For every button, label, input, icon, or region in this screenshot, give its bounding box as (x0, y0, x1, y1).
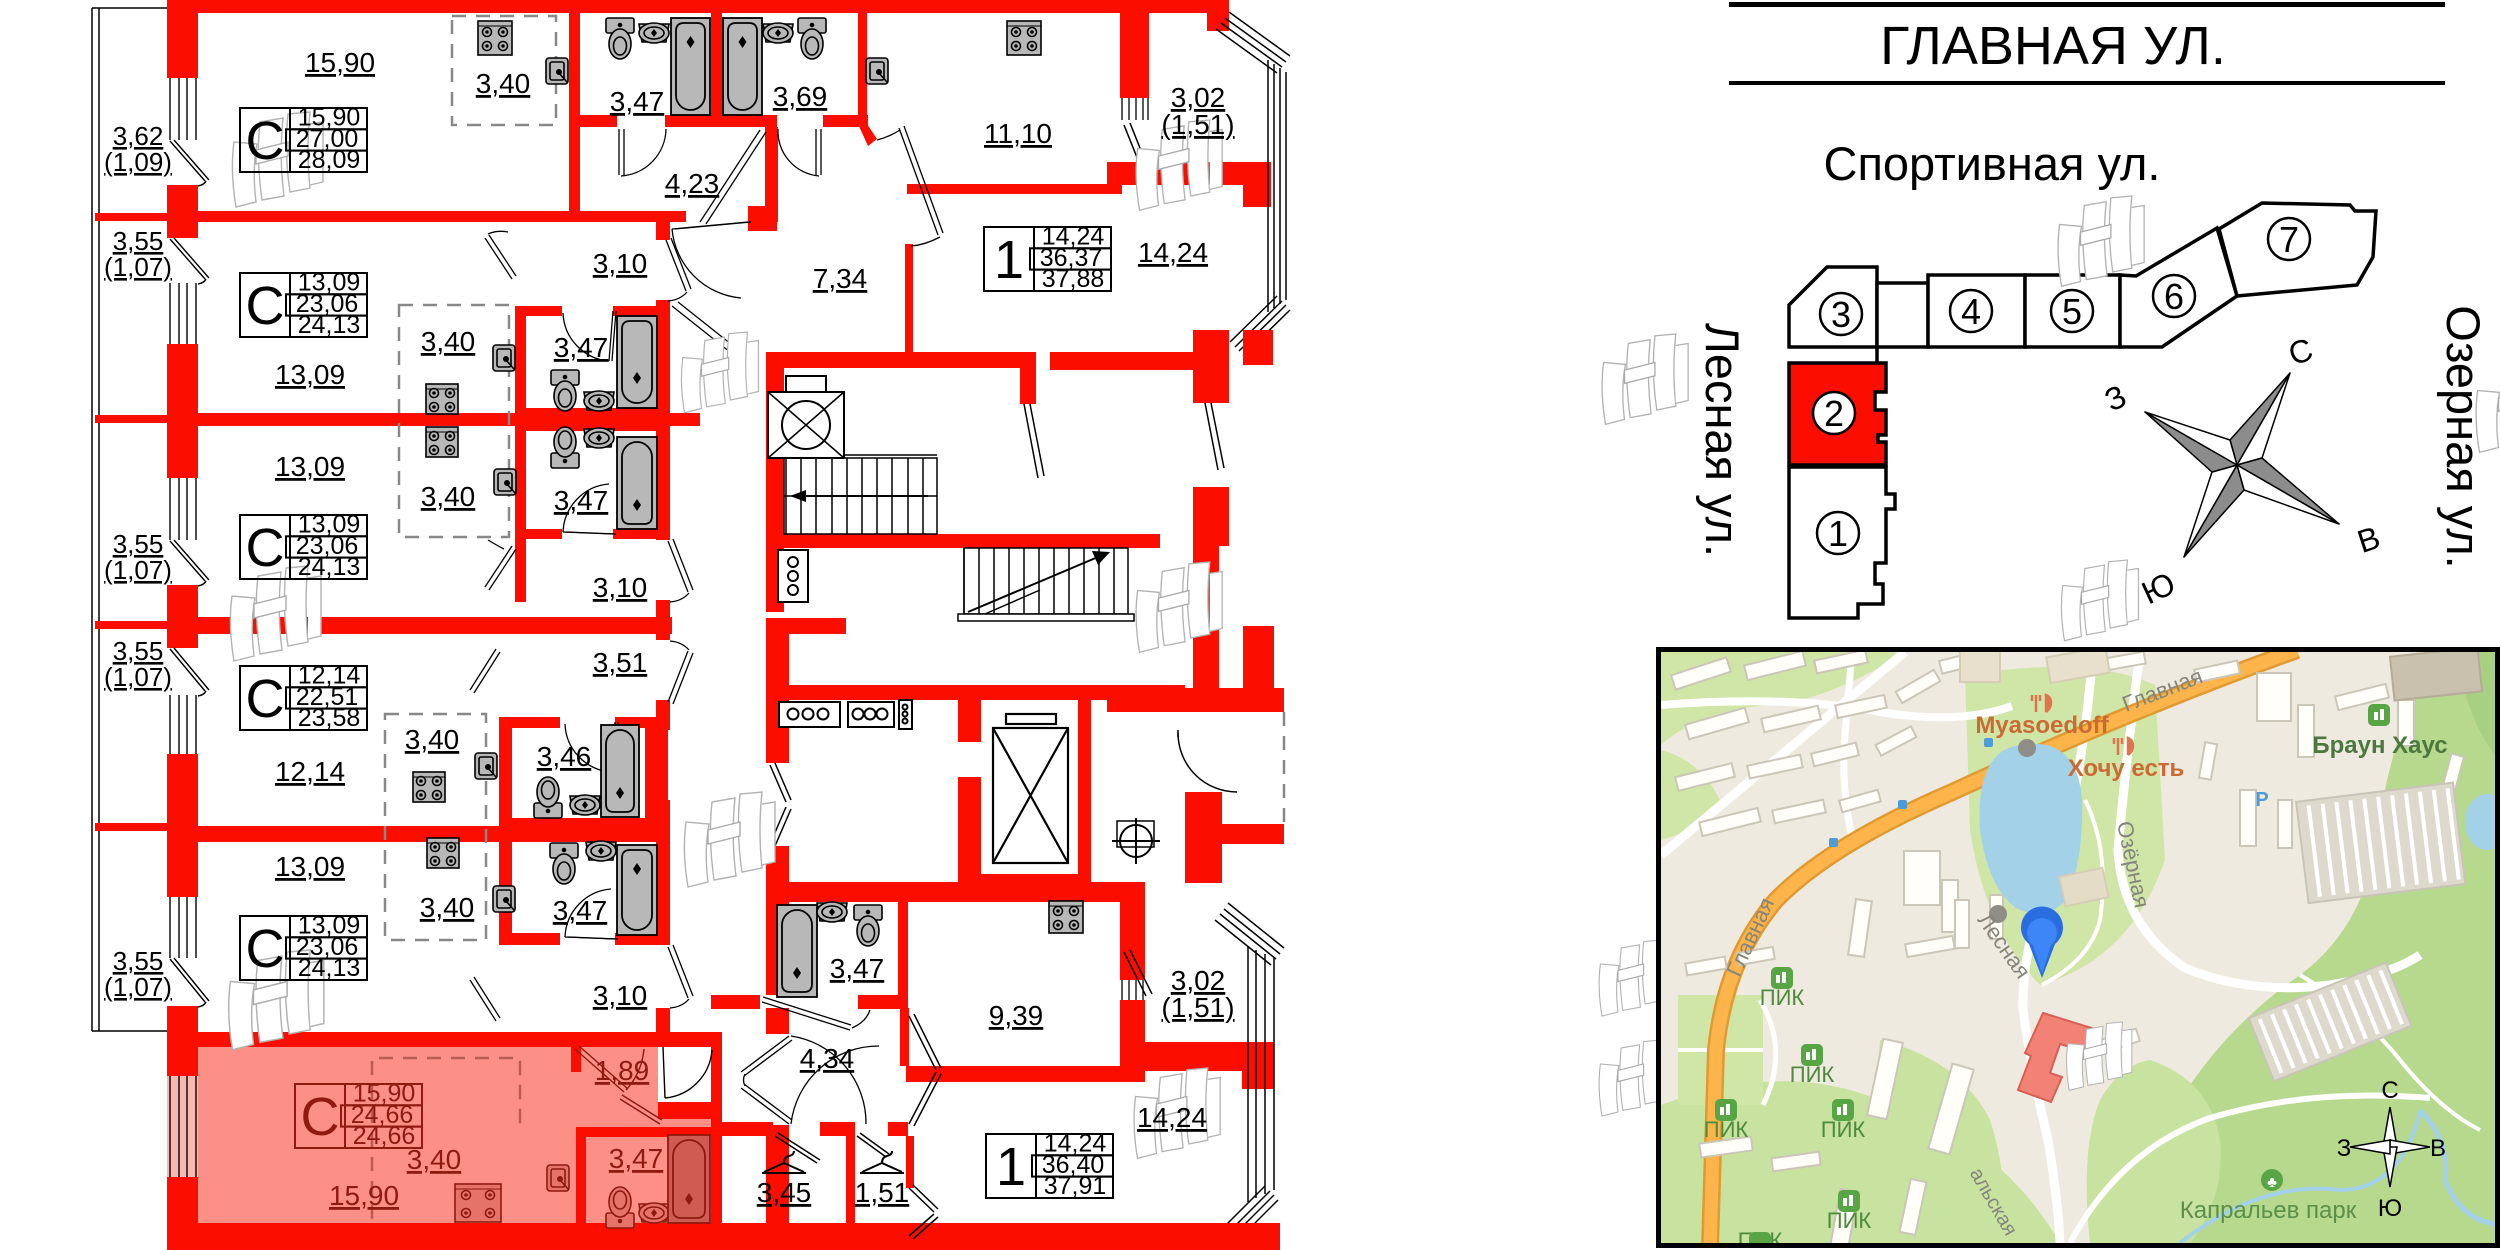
svg-text:С: С (246, 518, 285, 578)
svg-text:3,40: 3,40 (421, 481, 476, 512)
svg-text:(1,51): (1,51) (1161, 109, 1234, 140)
svg-text:Спортивная ул.: Спортивная ул. (1824, 137, 2161, 190)
svg-text:3,10: 3,10 (593, 980, 648, 1011)
svg-text:23,58: 23,58 (298, 704, 361, 732)
svg-text:13,09: 13,09 (275, 451, 345, 482)
svg-text:Myasoedoff: Myasoedoff (1975, 712, 2109, 739)
svg-text:3,10: 3,10 (593, 248, 648, 279)
svg-text:З: З (2099, 378, 2132, 419)
svg-text:(1,07): (1,07) (104, 252, 172, 282)
svg-text:ПИК: ПИК (1760, 985, 1805, 1010)
svg-text:9,39: 9,39 (989, 1000, 1044, 1031)
svg-text:ПИК: ПИК (1821, 1117, 1866, 1142)
svg-text:3,47: 3,47 (554, 332, 609, 363)
svg-text:С: С (246, 111, 285, 171)
svg-text:2: 2 (1824, 393, 1844, 434)
svg-text:(1,07): (1,07) (104, 662, 172, 692)
svg-text:14,24: 14,24 (1138, 237, 1208, 268)
svg-text:ПИК: ПИК (1827, 1208, 1872, 1233)
svg-text:P: P (2255, 789, 2268, 811)
svg-text:3,69: 3,69 (773, 81, 828, 112)
svg-text:37,88: 37,88 (1042, 265, 1105, 293)
svg-text:3,47: 3,47 (609, 1143, 664, 1174)
svg-text:13,09: 13,09 (275, 359, 345, 390)
svg-text:В: В (2353, 519, 2384, 560)
svg-text:1,89: 1,89 (595, 1055, 650, 1086)
svg-text:7,34: 7,34 (813, 263, 868, 294)
svg-text:1: 1 (996, 1137, 1026, 1197)
svg-text:3,47: 3,47 (554, 485, 609, 516)
svg-text:3,47: 3,47 (553, 895, 608, 926)
svg-text:1,51: 1,51 (855, 1177, 910, 1208)
svg-text:13,09: 13,09 (275, 851, 345, 882)
svg-text:3: 3 (1831, 294, 1851, 335)
svg-text:ПИК: ПИК (1704, 1117, 1749, 1142)
svg-text:37,91: 37,91 (1044, 1172, 1107, 1200)
svg-text:28,09: 28,09 (298, 146, 361, 174)
svg-text:3,46: 3,46 (537, 741, 592, 772)
svg-text:11,10: 11,10 (984, 118, 1052, 149)
svg-text:3,47: 3,47 (830, 953, 885, 984)
svg-text:24,13: 24,13 (298, 954, 361, 982)
svg-text:(1,07): (1,07) (104, 555, 172, 585)
svg-text:14,24: 14,24 (1137, 1102, 1207, 1133)
svg-text:12,14: 12,14 (275, 756, 345, 787)
svg-text:С: С (246, 669, 285, 729)
svg-text:6: 6 (2164, 276, 2184, 317)
svg-text:В: В (2430, 1135, 2446, 1162)
svg-text:3,40: 3,40 (405, 724, 460, 755)
svg-text:5: 5 (2062, 291, 2082, 332)
svg-text:3,45: 3,45 (757, 1177, 812, 1208)
svg-text:15,90: 15,90 (329, 1180, 399, 1211)
svg-text:ГЛАВНАЯ УЛ.: ГЛАВНАЯ УЛ. (1880, 16, 2226, 76)
svg-text:С: С (301, 1087, 340, 1147)
svg-text:Ю: Ю (2136, 565, 2181, 611)
svg-text:3,51: 3,51 (593, 647, 648, 678)
svg-text:1: 1 (994, 230, 1024, 290)
svg-text:24,66: 24,66 (353, 1122, 416, 1150)
svg-text:15,90: 15,90 (305, 47, 375, 78)
svg-text:4,23: 4,23 (665, 168, 720, 199)
svg-text:(1,07): (1,07) (104, 972, 172, 1002)
svg-text:С: С (246, 919, 285, 979)
svg-text:С: С (2381, 1077, 2398, 1104)
svg-text:♣: ♣ (2267, 1174, 2277, 1191)
svg-text:(1,09): (1,09) (104, 147, 172, 177)
svg-text:3,40: 3,40 (420, 892, 475, 923)
svg-text:3,47: 3,47 (610, 86, 665, 117)
svg-text:1: 1 (1828, 513, 1848, 554)
svg-text:3,40: 3,40 (421, 326, 476, 357)
svg-text:ПИК: ПИК (1790, 1062, 1835, 1087)
svg-text:З: З (2337, 1135, 2352, 1162)
svg-text:4,34: 4,34 (800, 1043, 855, 1074)
svg-text:24,13: 24,13 (298, 553, 361, 581)
svg-text:Браун Хаус: Браун Хаус (2312, 732, 2447, 759)
svg-text:Хочу есть: Хочу есть (2068, 755, 2185, 782)
svg-text:Лесная ул.: Лесная ул. (1696, 323, 1749, 557)
svg-text:24,13: 24,13 (298, 311, 361, 339)
svg-text:С: С (2284, 331, 2317, 372)
svg-text:Капральев парк: Капральев парк (2180, 1197, 2357, 1224)
svg-text:С: С (246, 276, 285, 336)
svg-text:4: 4 (1961, 291, 1981, 332)
svg-text:3,10: 3,10 (593, 572, 648, 603)
svg-text:Ю: Ю (2378, 1195, 2402, 1222)
svg-text:3,40: 3,40 (476, 68, 531, 99)
svg-text:7: 7 (2279, 219, 2299, 260)
svg-text:(1,51): (1,51) (1161, 992, 1234, 1023)
